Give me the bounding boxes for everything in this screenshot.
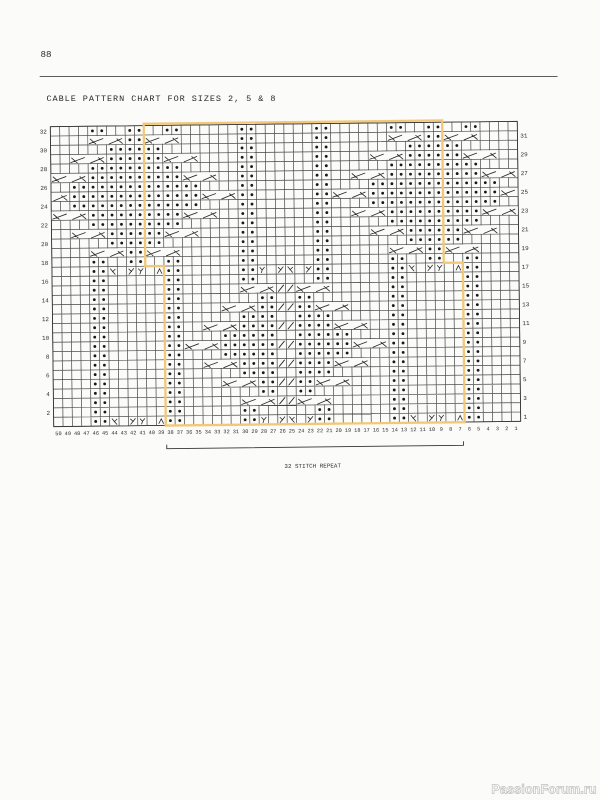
svg-text:16: 16 — [41, 279, 49, 286]
svg-text:24: 24 — [40, 204, 48, 211]
svg-text:39: 39 — [158, 430, 164, 436]
svg-text:11: 11 — [419, 427, 425, 433]
svg-text:32: 32 — [40, 129, 48, 136]
svg-text:34: 34 — [205, 429, 211, 435]
svg-text:7: 7 — [458, 427, 461, 433]
svg-text:6: 6 — [468, 427, 471, 433]
svg-text:47: 47 — [83, 431, 89, 437]
svg-text:44: 44 — [111, 431, 117, 437]
svg-text:22: 22 — [317, 428, 323, 434]
svg-text:13: 13 — [401, 427, 407, 433]
svg-text:23: 23 — [307, 428, 313, 434]
svg-text:46: 46 — [93, 431, 99, 437]
svg-text:5: 5 — [523, 376, 527, 383]
svg-text:28: 28 — [261, 429, 267, 435]
svg-text:25: 25 — [521, 189, 529, 196]
svg-text:25: 25 — [289, 429, 295, 435]
svg-text:42: 42 — [130, 430, 136, 436]
svg-text:24: 24 — [298, 428, 304, 434]
svg-text:49: 49 — [65, 431, 71, 437]
svg-text:40: 40 — [149, 430, 155, 436]
svg-text:7: 7 — [523, 358, 527, 365]
svg-text:14: 14 — [391, 427, 397, 433]
svg-text:CABLE PATTERN CHART FOR SIZES: CABLE PATTERN CHART FOR SIZES 2, 5 & 8 — [47, 94, 277, 104]
svg-text:3: 3 — [496, 426, 499, 432]
svg-text:2: 2 — [505, 426, 508, 432]
svg-text:31: 31 — [520, 133, 528, 140]
svg-text:17: 17 — [363, 428, 369, 434]
svg-text:38: 38 — [167, 430, 173, 436]
svg-text:14: 14 — [42, 297, 50, 304]
svg-text:26: 26 — [40, 185, 48, 192]
svg-text:33: 33 — [214, 429, 220, 435]
svg-text:37: 37 — [177, 430, 183, 436]
svg-text:1: 1 — [514, 426, 517, 432]
svg-text:8: 8 — [449, 427, 452, 433]
svg-text:30: 30 — [40, 147, 48, 154]
svg-text:21: 21 — [326, 428, 332, 434]
svg-text:26: 26 — [279, 429, 285, 435]
svg-text:5: 5 — [477, 426, 480, 432]
svg-text:4: 4 — [46, 391, 50, 398]
svg-text:43: 43 — [121, 430, 127, 436]
svg-text:8: 8 — [46, 354, 50, 361]
svg-text:36: 36 — [186, 430, 192, 436]
svg-text:19: 19 — [521, 245, 529, 252]
svg-text:32: 32 — [223, 429, 229, 435]
svg-text:1: 1 — [523, 414, 527, 421]
svg-text:10: 10 — [429, 427, 435, 433]
svg-text:13: 13 — [522, 301, 530, 308]
svg-text:3: 3 — [523, 395, 527, 402]
svg-text:27: 27 — [521, 170, 529, 177]
svg-text:50: 50 — [55, 431, 61, 437]
svg-text:6: 6 — [46, 372, 50, 379]
svg-text:20: 20 — [335, 428, 341, 434]
svg-text:16: 16 — [373, 428, 379, 434]
svg-text:19: 19 — [345, 428, 351, 434]
svg-text:10: 10 — [42, 335, 50, 342]
svg-text:4: 4 — [486, 426, 489, 432]
svg-text:9: 9 — [440, 427, 443, 433]
svg-text:18: 18 — [41, 260, 49, 267]
svg-text:15: 15 — [382, 427, 388, 433]
svg-text:35: 35 — [195, 430, 201, 436]
svg-text:21: 21 — [521, 226, 529, 233]
svg-text:31: 31 — [233, 429, 239, 435]
svg-text:9: 9 — [523, 339, 527, 346]
svg-text:28: 28 — [40, 166, 48, 173]
svg-text:45: 45 — [102, 431, 108, 437]
svg-text:20: 20 — [41, 241, 49, 248]
svg-text:48: 48 — [74, 431, 80, 437]
svg-text:15: 15 — [522, 282, 530, 289]
svg-text:18: 18 — [354, 428, 360, 434]
svg-text:23: 23 — [521, 207, 529, 214]
svg-text:88: 88 — [41, 49, 52, 60]
svg-text:29: 29 — [251, 429, 257, 435]
svg-text:41: 41 — [139, 430, 145, 436]
svg-text:PassionForum.ru: PassionForum.ru — [491, 782, 596, 797]
svg-text:17: 17 — [522, 264, 530, 271]
svg-text:29: 29 — [520, 151, 528, 158]
svg-text:30: 30 — [242, 429, 248, 435]
svg-text:22: 22 — [41, 222, 49, 229]
svg-text:12: 12 — [410, 427, 416, 433]
svg-text:27: 27 — [270, 429, 276, 435]
svg-text:32 STITCH REPEAT: 32 STITCH REPEAT — [284, 462, 341, 470]
svg-text:12: 12 — [42, 316, 50, 323]
svg-text:2: 2 — [46, 410, 50, 417]
svg-text:11: 11 — [522, 320, 530, 327]
